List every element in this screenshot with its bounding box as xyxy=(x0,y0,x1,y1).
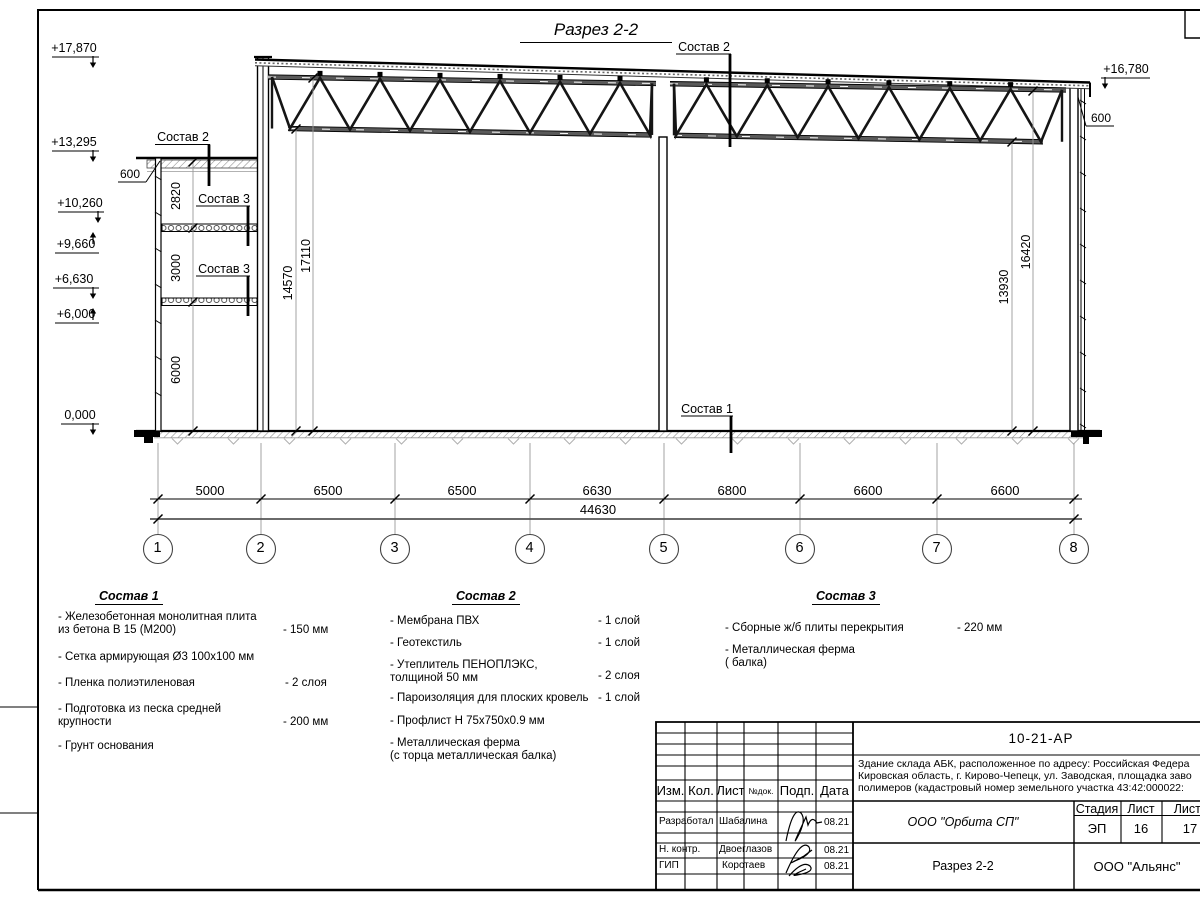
legend3-header: Состав 3 xyxy=(812,589,880,605)
vertical-dim-14570: 14570 xyxy=(281,266,295,301)
soil-break-marks xyxy=(172,439,1079,445)
mezzanine-slab-upper xyxy=(162,224,257,232)
leader-sostav2-roof: Состав 2 xyxy=(676,40,732,54)
legend1-item: - Грунт основания xyxy=(58,740,278,753)
tb-col-izm: Изм. xyxy=(657,783,685,798)
grid-axis-4: 4 xyxy=(515,540,544,556)
legend2-item: - Утеплитель ПЕНОПЛЭКС, толщиной 50 мм xyxy=(390,659,600,684)
legend1-item: - Железобетонная монолитная плита из бет… xyxy=(58,611,278,636)
tb-company: ООО "Орбита СП" xyxy=(908,815,1019,829)
legend2-item: - Пароизоляция для плоских кровель xyxy=(390,692,605,705)
vertical-dim-2820: 2820 xyxy=(169,182,183,210)
legend1-item: - Сетка армирующая Ø3 100х100 мм xyxy=(58,651,288,664)
offset-600-label: 600 xyxy=(1085,111,1117,125)
legend3-item: - Сборные ж/б плиты перекрытия xyxy=(725,622,950,635)
floor-slab xyxy=(134,430,1102,444)
grid-axis-7: 7 xyxy=(922,540,951,556)
legend2-item-value: - 1 слой xyxy=(598,615,640,627)
legend2-item-value: - 2 слоя xyxy=(598,670,640,682)
tb-name: Коротаев xyxy=(722,860,765,871)
elevation-label: +6,000 xyxy=(53,307,99,321)
vertical-dim-13930: 13930 xyxy=(997,270,1011,305)
tb-doc-number: 10-21-АР xyxy=(1008,731,1073,746)
tb-stage: ЭП xyxy=(1088,821,1107,836)
tb-col-data: Дата xyxy=(820,783,849,798)
leader-sostav2-mezz: Состав 2 xyxy=(155,130,211,144)
tb-stage-label: Стадия xyxy=(1076,802,1119,816)
tb-listov: 17 xyxy=(1183,821,1197,836)
tb-date: 08.21 xyxy=(824,861,849,872)
legend1-item-value: - 150 мм xyxy=(283,624,328,636)
legend1-item: - Пленка полиэтиленовая xyxy=(58,677,278,690)
elevation-label: +13,295 xyxy=(50,135,98,149)
span-dim: 6500 xyxy=(314,483,343,498)
tb-role: Н. контр. xyxy=(659,844,700,855)
columns xyxy=(254,57,1086,431)
vertical-dim-3000: 3000 xyxy=(169,254,183,282)
column-axis-5 xyxy=(659,137,667,431)
tb-col-podp: Подп. xyxy=(780,783,815,798)
legend2-item-value: - 1 слой xyxy=(598,692,640,704)
legend2-item: - Металлическая ферма (с торца металличе… xyxy=(390,737,610,762)
leader-sostav3-upper: Состав 3 xyxy=(196,192,252,206)
page-title: Разрез 2-2 xyxy=(520,20,672,43)
tb-role: ГИП xyxy=(659,860,679,871)
span-dim: 6800 xyxy=(718,483,747,498)
tb-role: Разработал xyxy=(659,816,713,827)
legend1-item-value: - 200 мм xyxy=(283,716,328,728)
grid-axis-5: 5 xyxy=(649,540,678,556)
vertical-dim-16420: 16420 xyxy=(1019,235,1033,270)
legend2-item-value: - 1 слой xyxy=(598,637,640,649)
tb-list: 16 xyxy=(1134,821,1148,836)
legend2-item: - Профлист Н 75х750х0.9 мм xyxy=(390,715,605,728)
elevation-label: +6,630 xyxy=(51,272,97,286)
span-dim: 6600 xyxy=(991,483,1020,498)
elevation-label: +16,780 xyxy=(1101,62,1151,76)
grid-axis-1: 1 xyxy=(143,540,172,556)
tb-col-ndoc: №док. xyxy=(749,786,774,796)
tb-name: Двоеглазов xyxy=(719,844,772,855)
legend1-item-value: - 2 слоя xyxy=(285,677,327,689)
tb-name: Шабалина xyxy=(719,816,767,827)
leader-sostav3-lower: Состав 3 xyxy=(196,262,252,276)
tb-listov-label: Листов xyxy=(1174,802,1200,816)
tb-date: 08.21 xyxy=(824,845,849,856)
tb-description: Здание склада АБК, расположенное по адре… xyxy=(858,758,1200,800)
legend3-item-value: - 220 мм xyxy=(957,622,1002,634)
tb-sheet-name: Разрез 2-2 xyxy=(932,859,993,873)
tb-col-kol: Кол. xyxy=(688,783,714,798)
drawing-sheet: Разрез 2-2 +17,870 +13,295 +10,260 +9,66… xyxy=(0,0,1200,900)
span-dim: 5000 xyxy=(196,483,225,498)
elevation-label: +9,660 xyxy=(53,237,99,251)
span-dim: 6600 xyxy=(854,483,883,498)
tb-date: 08.21 xyxy=(824,817,849,828)
tb-col-list: Лист xyxy=(716,783,744,798)
signatures xyxy=(786,812,822,876)
column-axis-8 xyxy=(1070,85,1078,431)
vertical-dim-6000: 6000 xyxy=(169,356,183,384)
leader-sostav1-floor: Состав 1 xyxy=(679,402,735,416)
elevation-label: 0,000 xyxy=(59,408,101,422)
total-dim: 44630 xyxy=(580,502,616,517)
grid-axis-6: 6 xyxy=(785,540,814,556)
legend3-item: - Металлическая ферма ( балка) xyxy=(725,644,950,669)
corner-stamp-box xyxy=(1185,10,1200,38)
dimension-chain xyxy=(144,74,1089,564)
legend1-item: - Подготовка из песка средней крупности xyxy=(58,703,278,728)
legend2-header: Состав 2 xyxy=(452,589,520,605)
elevation-label: +17,870 xyxy=(50,41,98,55)
legend2-item: - Геотекстиль xyxy=(390,637,600,650)
offset-600-label: 600 xyxy=(114,167,146,181)
tb-list-label: Лист xyxy=(1127,802,1154,816)
signature-dvoeglazov-korotaev xyxy=(786,845,812,876)
span-dim: 6630 xyxy=(583,483,612,498)
span-dim: 6500 xyxy=(448,483,477,498)
grid-axis-2: 2 xyxy=(246,540,275,556)
grid-axis-3: 3 xyxy=(380,540,409,556)
mezzanine-wall xyxy=(156,158,162,431)
elevation-label: +10,260 xyxy=(56,196,104,210)
mezzanine-slab-lower xyxy=(162,298,257,306)
grid-axis-8: 8 xyxy=(1059,540,1088,556)
signature-shabalina xyxy=(786,812,822,841)
vertical-dim-17110: 17110 xyxy=(299,239,313,273)
legend2-item: - Мембрана ПВХ xyxy=(390,615,600,628)
legend1-header: Состав 1 xyxy=(95,589,163,605)
tb-firm: ООО "Альянс" xyxy=(1094,859,1181,874)
